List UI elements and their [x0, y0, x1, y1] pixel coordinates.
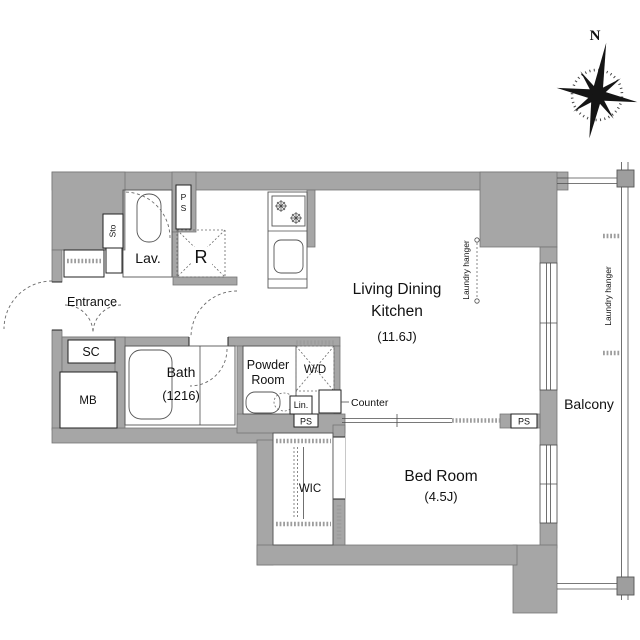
wall-top-right-block — [480, 172, 557, 247]
washer-dryer-label: W/D — [304, 364, 326, 376]
fixture-labels: W/D Lin. Counter R SC MB Sto — [79, 224, 388, 410]
rail-post-top — [617, 170, 634, 187]
wall-right-lower — [540, 523, 557, 548]
floor-plan-canvas: N Living Dining Kitchen (11.6J) Bed Room… — [0, 0, 640, 640]
storage-label: Sto — [108, 224, 118, 237]
balcony-rail — [557, 162, 634, 600]
wall-powder-bottom-band — [237, 414, 345, 433]
wall-right-upper — [540, 247, 557, 263]
rail-post-bottom — [617, 577, 634, 595]
entry-door-swing-exterior — [4, 281, 52, 329]
wall-powder-left — [237, 346, 243, 425]
compass-rose: N — [549, 28, 640, 145]
entrance-door-swing — [93, 305, 121, 333]
compass-diagonals — [557, 55, 638, 136]
pipe-space-labels: PS PS PS — [179, 192, 531, 427]
laundry-hanger-label-balcony: Laundry hanger — [603, 266, 613, 326]
powder-room-label-line1: Powder — [247, 358, 289, 372]
living-window — [540, 263, 557, 390]
wall-bottom-band — [257, 545, 517, 565]
powder-room-label-line2: Room — [251, 373, 284, 387]
bath-fixtures — [129, 346, 227, 425]
wall-right-middle — [540, 390, 557, 445]
lavatory-fixtures — [124, 192, 170, 242]
powder-fixtures — [246, 392, 294, 413]
ldk-label-line2: Kitchen — [371, 303, 423, 320]
laundry-hanger-label-indoor: Laundry hanger — [461, 240, 471, 300]
entrance-fixtures — [4, 247, 122, 333]
entrance-door-swing — [65, 305, 93, 333]
counter-label: Counter — [351, 397, 389, 409]
floor-plan: N Living Dining Kitchen (11.6J) Bed Room… — [0, 0, 640, 640]
compass-north-label: N — [590, 28, 601, 44]
opening-wic — [333, 437, 345, 499]
bedroom-label: Bed Room — [404, 468, 477, 485]
toilet-icon — [137, 194, 161, 242]
wic-label: WIC — [299, 483, 321, 495]
bath-label: Bath — [167, 364, 196, 380]
vanity-sink — [246, 392, 280, 413]
bath-size-label: (1216) — [162, 388, 200, 403]
opening-hall — [189, 337, 228, 347]
wall-kitchen-stub — [307, 190, 315, 247]
laundry-hanger-labels: Laundry hanger Laundry hanger — [461, 240, 613, 326]
linen-label: Lin. — [294, 400, 309, 410]
ldk-label-line1: Living Dining — [353, 281, 442, 298]
entrance-label: Entrance — [67, 295, 117, 309]
pipe-space-label-top: PS — [179, 192, 189, 214]
refrigerator-label: R — [195, 247, 208, 267]
meter-box-label: MB — [79, 395, 97, 407]
pipe-space-label-balcony: PS — [518, 417, 530, 427]
bath-door-swing — [190, 349, 227, 386]
lav-door-panel — [106, 247, 122, 273]
pipe-space-label-mid: PS — [300, 417, 312, 427]
ldk-size-label: (11.6J) — [377, 329, 417, 344]
bathtub — [129, 350, 172, 419]
hanger-end — [475, 299, 479, 303]
kitchen-sink — [274, 240, 303, 273]
balcony-label: Balcony — [564, 396, 614, 412]
hall-door-swing — [191, 291, 237, 337]
wall-under-fridge — [173, 277, 237, 285]
hanger-end — [475, 238, 479, 242]
kitchen-counter — [268, 192, 307, 288]
lavatory-label: Lav. — [135, 250, 160, 266]
laundry-hanger-indoor — [475, 238, 479, 303]
entry-storage-box — [64, 250, 104, 277]
wall-left-upper — [52, 250, 62, 282]
wall-bottom-right-column — [513, 545, 557, 613]
bedroom-size-label: (4.5J) — [424, 489, 457, 504]
shoe-closet-label: SC — [82, 345, 99, 359]
counter-box — [319, 390, 341, 413]
